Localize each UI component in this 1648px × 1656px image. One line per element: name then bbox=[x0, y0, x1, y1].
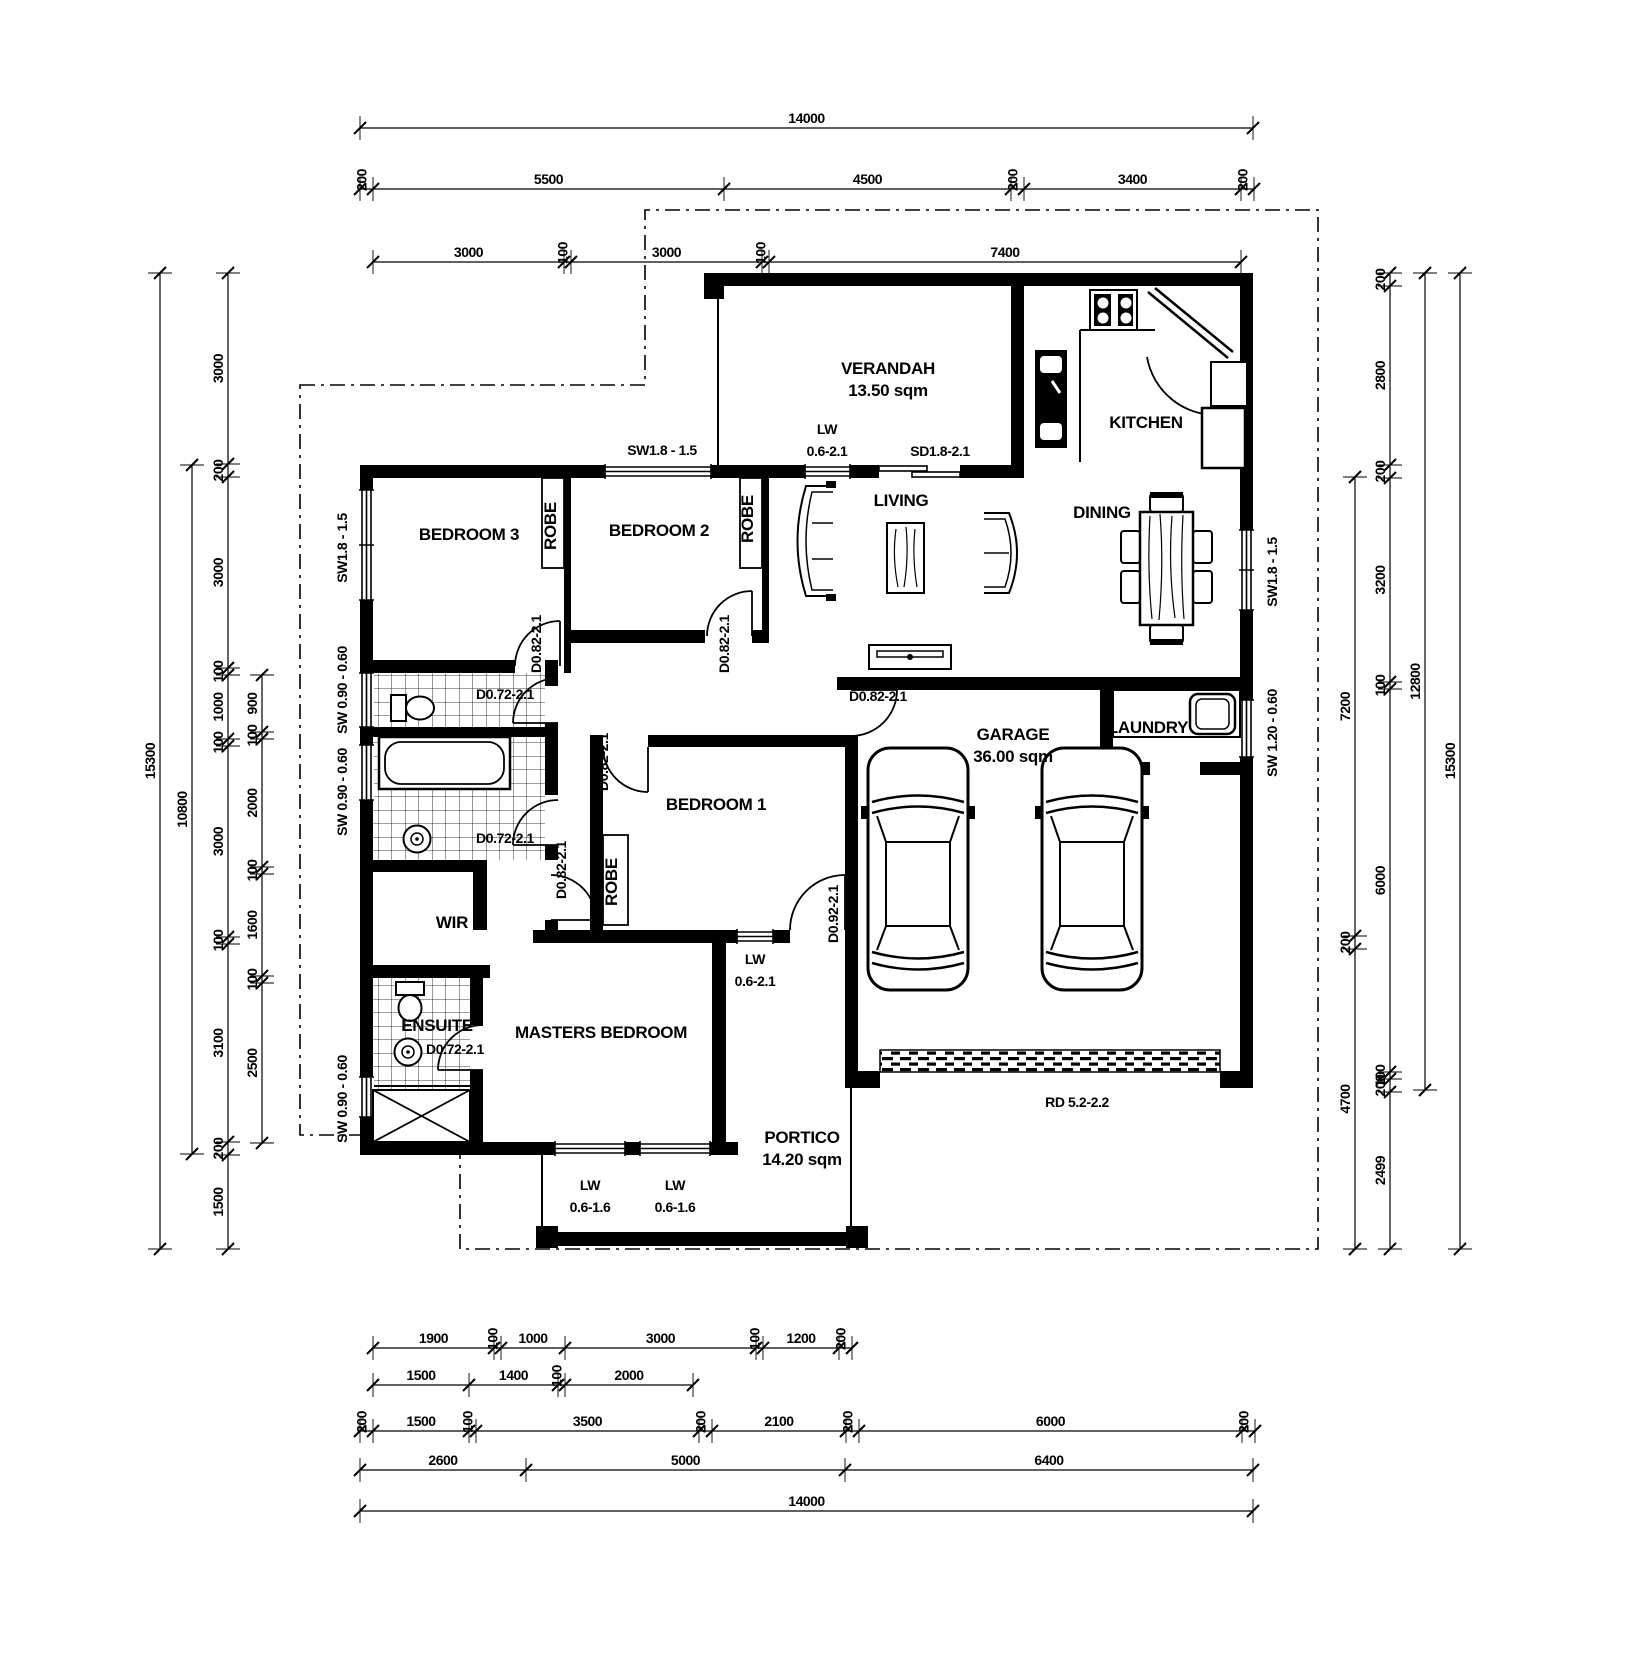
window-label-bedroom2-north: SW1.8 - 1.5 bbox=[627, 442, 697, 458]
dim-label: 10800 bbox=[174, 791, 190, 828]
dim-label: 200 bbox=[354, 1410, 370, 1433]
dim-label: 7200 bbox=[1337, 691, 1353, 721]
stove-icon bbox=[1090, 290, 1137, 330]
dim-label: 5500 bbox=[534, 171, 564, 187]
dim-label: 200 bbox=[1236, 1410, 1252, 1433]
dim-label: 1000 bbox=[210, 692, 226, 722]
robes bbox=[542, 478, 762, 925]
dim-label: 200 bbox=[1337, 931, 1353, 954]
rug-icon bbox=[887, 523, 924, 593]
room-label-bedroom2: BEDROOM 2 bbox=[609, 521, 709, 540]
basin-icon-ensuite bbox=[395, 1039, 422, 1066]
fridge-icon bbox=[1202, 408, 1245, 468]
dim-label: 6000 bbox=[1372, 865, 1388, 895]
basin-icon-bath bbox=[404, 826, 431, 853]
door-label-masters: D0.82-2.1 bbox=[553, 840, 569, 898]
room-label-ensuite: ENSUITE bbox=[401, 1016, 473, 1035]
dim-label: 3400 bbox=[1118, 171, 1148, 187]
window-label-bath-west: SW 0.90 - 0.60 bbox=[334, 747, 350, 835]
door-label-bath: D0.72-2.1 bbox=[476, 830, 534, 846]
room-label-laundry: LAUNDRY bbox=[1108, 718, 1189, 737]
dim-label: 100 bbox=[210, 660, 226, 683]
dim-label: 4500 bbox=[853, 171, 883, 187]
window-label-bedroom1-lw: LW bbox=[745, 951, 766, 967]
window-label-masters-lw2: LW bbox=[665, 1177, 686, 1193]
dim-chain-right-overall: 15300 bbox=[1442, 267, 1472, 1255]
car-icon-2 bbox=[1035, 748, 1149, 990]
dim-label: 1400 bbox=[499, 1367, 529, 1383]
dim-label: 900 bbox=[244, 692, 260, 715]
window-size-masters-lw1: 0.6-1.6 bbox=[570, 1199, 611, 1215]
window-label-shower-west: SW 0.90 - 0.60 bbox=[334, 1054, 350, 1142]
dim-label: 200 bbox=[693, 1410, 709, 1433]
dim-label: 6000 bbox=[1036, 1413, 1066, 1429]
room-label-bedroom1: BEDROOM 1 bbox=[666, 795, 766, 814]
dim-label: 100 bbox=[460, 1410, 476, 1433]
dim-label: 7400 bbox=[990, 244, 1020, 260]
kitchen-fixtures bbox=[1035, 288, 1247, 468]
dim-label: 3000 bbox=[454, 244, 484, 260]
door-label-bedroom1: D0.82-2.1 bbox=[595, 732, 611, 790]
dim-label: 100 bbox=[210, 929, 226, 952]
dim-label: 200 bbox=[833, 1327, 849, 1350]
dim-label: 100 bbox=[1372, 674, 1388, 697]
window-bath-west bbox=[359, 745, 374, 800]
dim-label: 3000 bbox=[210, 826, 226, 856]
dim-label: 100 bbox=[555, 241, 571, 264]
dim-label: 200 bbox=[1372, 268, 1388, 291]
dim-label: 100 bbox=[244, 724, 260, 747]
dim-label: 100 bbox=[753, 241, 769, 264]
dim-label: 200 bbox=[1372, 460, 1388, 483]
corner-pantry bbox=[1148, 288, 1233, 358]
room-label-dining: DINING bbox=[1073, 503, 1131, 522]
window-masters-lw1 bbox=[555, 1141, 625, 1156]
dim-label: 200 bbox=[354, 168, 370, 191]
dim-label: 2000 bbox=[614, 1367, 644, 1383]
dim-label: 14000 bbox=[788, 1493, 825, 1509]
room-area-verandah: 13.50 sqm bbox=[848, 381, 928, 400]
dim-chain-bottom-row3: 2001500100350020021002006000200 bbox=[354, 1410, 1262, 1443]
dim-label: 3500 bbox=[573, 1413, 603, 1429]
dim-label: 2100 bbox=[764, 1413, 794, 1429]
robe-label-bedroom3: ROBE bbox=[541, 502, 560, 550]
dining-table-icon bbox=[1121, 492, 1212, 645]
window-bedroom3-west bbox=[359, 490, 374, 600]
dim-chain-left-overall: 15300 bbox=[142, 267, 172, 1255]
door-label-wc: D0.72-2.1 bbox=[476, 686, 534, 702]
floor-plan-svg: VERANDAH13.50 sqmKITCHENLIVINGDININGBEDR… bbox=[0, 0, 1648, 1656]
dim-label: 2500 bbox=[244, 1048, 260, 1078]
dim-label: 200 bbox=[840, 1410, 856, 1433]
door-label-garage: D0.82-2.1 bbox=[849, 688, 907, 704]
window-label-bedroom3-west: SW1.8 - 1.5 bbox=[334, 513, 350, 583]
dim-label: 200 bbox=[1005, 168, 1021, 191]
window-size-bedroom1-lw: 0.6-2.1 bbox=[735, 973, 776, 989]
door-pantry-swing bbox=[1147, 357, 1218, 415]
door-label-front-entry: D0.92-2.1 bbox=[825, 884, 841, 942]
window-label-masters-lw1: LW bbox=[580, 1177, 601, 1193]
dim-label: 2600 bbox=[428, 1452, 458, 1468]
dim-chain-left-house: 10800 bbox=[174, 459, 204, 1160]
door-label-roller: RD 5.2-2.2 bbox=[1045, 1094, 1109, 1110]
window-verandah-lw bbox=[805, 464, 850, 479]
window-dining-east bbox=[1239, 530, 1254, 610]
dim-label: 5000 bbox=[671, 1452, 701, 1468]
dim-label: 12800 bbox=[1407, 663, 1423, 700]
door-label-bedroom3: D0.82-2.1 bbox=[528, 614, 544, 672]
sideboard-icon bbox=[869, 645, 951, 669]
pantry-shelf bbox=[1211, 362, 1247, 406]
dim-label: 3200 bbox=[1372, 565, 1388, 595]
dim-chain-bottom-row4: 260050006400 bbox=[354, 1452, 1259, 1482]
window-wc-west bbox=[359, 673, 374, 727]
room-label-verandah: VERANDAH bbox=[841, 359, 935, 378]
dim-label: 200 bbox=[210, 459, 226, 482]
roller-door bbox=[880, 1050, 1220, 1072]
dim-label: 1200 bbox=[786, 1330, 816, 1346]
dim-label: 15300 bbox=[142, 742, 158, 779]
room-area-garage: 36.00 sqm bbox=[973, 747, 1053, 766]
shower-icon bbox=[373, 1090, 470, 1142]
window-bedroom1-lw bbox=[737, 929, 773, 944]
robe-label-bedroom2: ROBE bbox=[738, 495, 757, 543]
toilet-icon-wc bbox=[391, 695, 434, 721]
door-label-ensuite: D0.72-2.1 bbox=[426, 1041, 484, 1057]
window-label-dining-east: SW1.8 - 1.5 bbox=[1264, 537, 1280, 607]
room-label-portico: PORTICO bbox=[764, 1128, 839, 1147]
dim-chain-bottom-row2: 150014001002000 bbox=[367, 1364, 699, 1397]
room-label-living: LIVING bbox=[874, 491, 929, 510]
dim-label: 1600 bbox=[244, 910, 260, 940]
dim-label: 2000 bbox=[244, 788, 260, 818]
dim-chain-right-rooms: 2002800200320010060001002002499 bbox=[1372, 267, 1402, 1255]
dim-label: 1900 bbox=[419, 1330, 449, 1346]
room-label-bedroom3: BEDROOM 3 bbox=[419, 525, 519, 544]
dim-chain-bottom-overall: 14000 bbox=[354, 1493, 1259, 1523]
dim-chain-top-row3: 300010030001007400 bbox=[367, 241, 1247, 274]
dim-chain-bottom-row1: 1900100100030001001200200 bbox=[367, 1327, 858, 1360]
car-icon-1 bbox=[861, 748, 975, 990]
armchair-icon bbox=[984, 513, 1017, 593]
dim-label: 6400 bbox=[1034, 1452, 1064, 1468]
door-label-bedroom2: D0.82-2.1 bbox=[716, 614, 732, 672]
window-shower-west bbox=[359, 1077, 374, 1117]
dim-label: 4700 bbox=[1337, 1084, 1353, 1114]
sofa-icon bbox=[798, 481, 837, 601]
room-label-masters-bedroom: MASTERS BEDROOM bbox=[515, 1023, 687, 1042]
dim-label: 200 bbox=[1372, 1074, 1388, 1097]
window-label-laundry-east: SW 1.20 - 0.60 bbox=[1264, 688, 1280, 776]
dim-label: 100 bbox=[549, 1364, 565, 1387]
dim-chain-right-inner: 72002004700 bbox=[1337, 471, 1367, 1255]
dim-label: 1500 bbox=[406, 1367, 436, 1383]
dim-label: 2499 bbox=[1372, 1155, 1388, 1185]
dim-chain-top-overall: 14000 bbox=[354, 110, 1259, 140]
floorplan-sheet: VERANDAH13.50 sqmKITCHENLIVINGDININGBEDR… bbox=[0, 0, 1648, 1656]
dim-label: 3000 bbox=[210, 557, 226, 587]
dim-label: 1500 bbox=[406, 1413, 436, 1429]
dim-label: 200 bbox=[210, 1137, 226, 1160]
window-size-verandah-lw: 0.6-2.1 bbox=[807, 443, 848, 459]
dim-label: 100 bbox=[210, 731, 226, 754]
dim-label: 14000 bbox=[788, 110, 825, 126]
dim-label: 2800 bbox=[1372, 360, 1388, 390]
dim-label: 1000 bbox=[518, 1330, 548, 1346]
dim-chain-left-inner: 900100200010016001002500 bbox=[244, 669, 274, 1149]
room-label-wir: WIR bbox=[436, 913, 468, 932]
sliding-door-glyph bbox=[879, 464, 960, 479]
dim-label: 100 bbox=[485, 1327, 501, 1350]
window-label-verandah-lw: LW bbox=[817, 421, 838, 437]
robe-label-bedroom1: ROBE bbox=[602, 858, 621, 906]
dim-label: 100 bbox=[244, 859, 260, 882]
window-masters-lw2 bbox=[640, 1141, 710, 1156]
window-label-wc-west: SW 0.90 - 0.60 bbox=[334, 645, 350, 733]
window-laundry-east bbox=[1239, 700, 1254, 757]
dim-label: 1500 bbox=[210, 1187, 226, 1217]
dim-label: 3000 bbox=[210, 353, 226, 383]
kitchen-sink-icon bbox=[1035, 350, 1067, 448]
door-label-sliding: SD1.8-2.1 bbox=[910, 443, 970, 459]
dim-chain-left-rooms: 300020030001001000100300010031002001500 bbox=[210, 267, 240, 1255]
dim-chain-right-sub: 12800 bbox=[1407, 267, 1437, 1096]
dim-label: 200 bbox=[1235, 168, 1251, 191]
dim-label: 3000 bbox=[646, 1330, 676, 1346]
room-area-portico: 14.20 sqm bbox=[762, 1150, 842, 1169]
dim-label: 15300 bbox=[1442, 742, 1458, 779]
bathtub-icon bbox=[379, 737, 510, 789]
window-size-masters-lw2: 0.6-1.6 bbox=[655, 1199, 696, 1215]
room-label-kitchen: KITCHEN bbox=[1109, 413, 1182, 432]
window-bedroom2-north bbox=[605, 464, 711, 479]
dim-label: 3100 bbox=[210, 1028, 226, 1058]
dim-label: 100 bbox=[244, 968, 260, 991]
dim-label: 3000 bbox=[652, 244, 682, 260]
dim-chain-top-row2: 200550045002003400200 bbox=[354, 168, 1261, 201]
dim-label: 100 bbox=[747, 1327, 763, 1350]
room-label-garage: GARAGE bbox=[977, 725, 1050, 744]
